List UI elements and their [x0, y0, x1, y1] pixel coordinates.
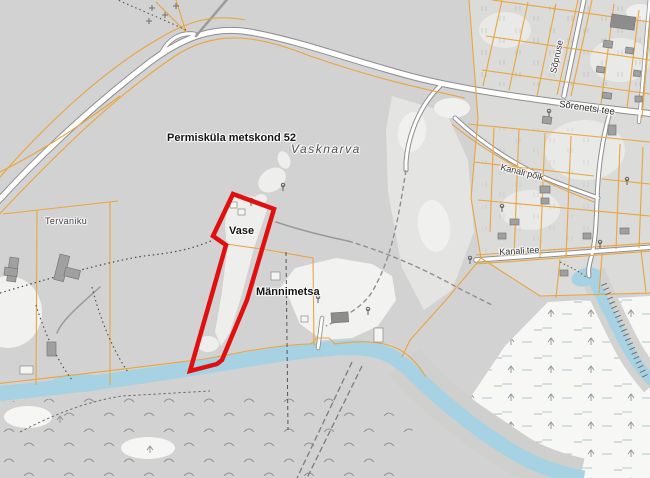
- map-viewport[interactable]: Permisküla metskond 52 Vasknarva Vase Mä…: [0, 0, 650, 478]
- map-canvas: [0, 0, 650, 478]
